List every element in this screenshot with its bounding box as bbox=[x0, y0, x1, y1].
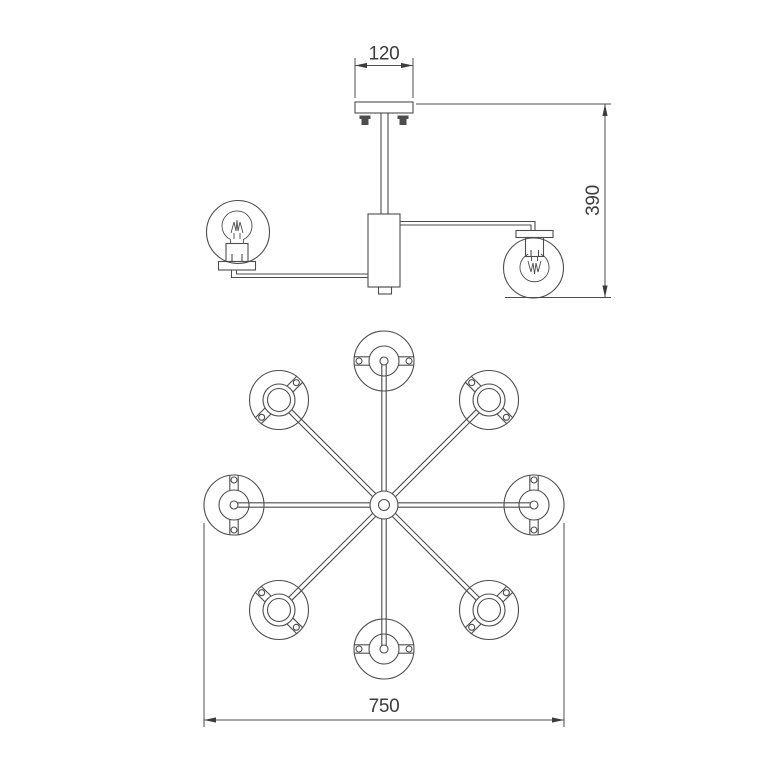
dimension-120: 120 bbox=[355, 44, 413, 99]
side-view bbox=[207, 102, 564, 298]
left-socket bbox=[226, 244, 248, 262]
arrow-down-icon bbox=[602, 286, 607, 298]
canopy-screw-right-icon bbox=[398, 116, 409, 126]
arrow-right-icon bbox=[401, 63, 413, 68]
right-socket bbox=[526, 238, 544, 257]
ceiling-canopy bbox=[355, 102, 413, 113]
right-socket-plate bbox=[516, 231, 553, 238]
right-arm bbox=[400, 222, 535, 231]
arm-west bbox=[204, 475, 370, 535]
left-bulb-icon bbox=[222, 211, 252, 244]
dim-390-label: 390 bbox=[583, 185, 604, 216]
arrow-left-icon bbox=[204, 717, 216, 722]
right-lamp bbox=[400, 222, 564, 299]
chandelier-drawing: 120 390 750 bbox=[0, 0, 767, 767]
center-body-cap bbox=[379, 287, 392, 294]
canopy-screw-left-icon bbox=[360, 116, 371, 126]
dim-750-label: 750 bbox=[369, 696, 400, 717]
left-lamp bbox=[207, 201, 369, 278]
plan-view bbox=[204, 331, 564, 679]
stem-rod bbox=[381, 113, 388, 214]
arm-east bbox=[398, 475, 564, 535]
dim-120-label: 120 bbox=[369, 44, 400, 65]
center-hub bbox=[370, 491, 398, 519]
arm-north bbox=[354, 331, 414, 491]
dimension-390: 390 bbox=[416, 104, 611, 298]
right-bulb-icon bbox=[520, 254, 549, 282]
arrow-left-icon bbox=[355, 63, 367, 68]
dimension-750: 750 bbox=[204, 523, 564, 727]
left-globe-shade bbox=[207, 201, 270, 264]
center-body bbox=[368, 214, 400, 287]
arm-south bbox=[354, 519, 414, 679]
drawing-canvas: 120 390 750 bbox=[0, 0, 767, 767]
left-socket-plate bbox=[219, 262, 256, 271]
arrow-up-icon bbox=[602, 104, 607, 116]
left-arm bbox=[232, 270, 369, 278]
arrow-right-icon bbox=[552, 717, 564, 722]
